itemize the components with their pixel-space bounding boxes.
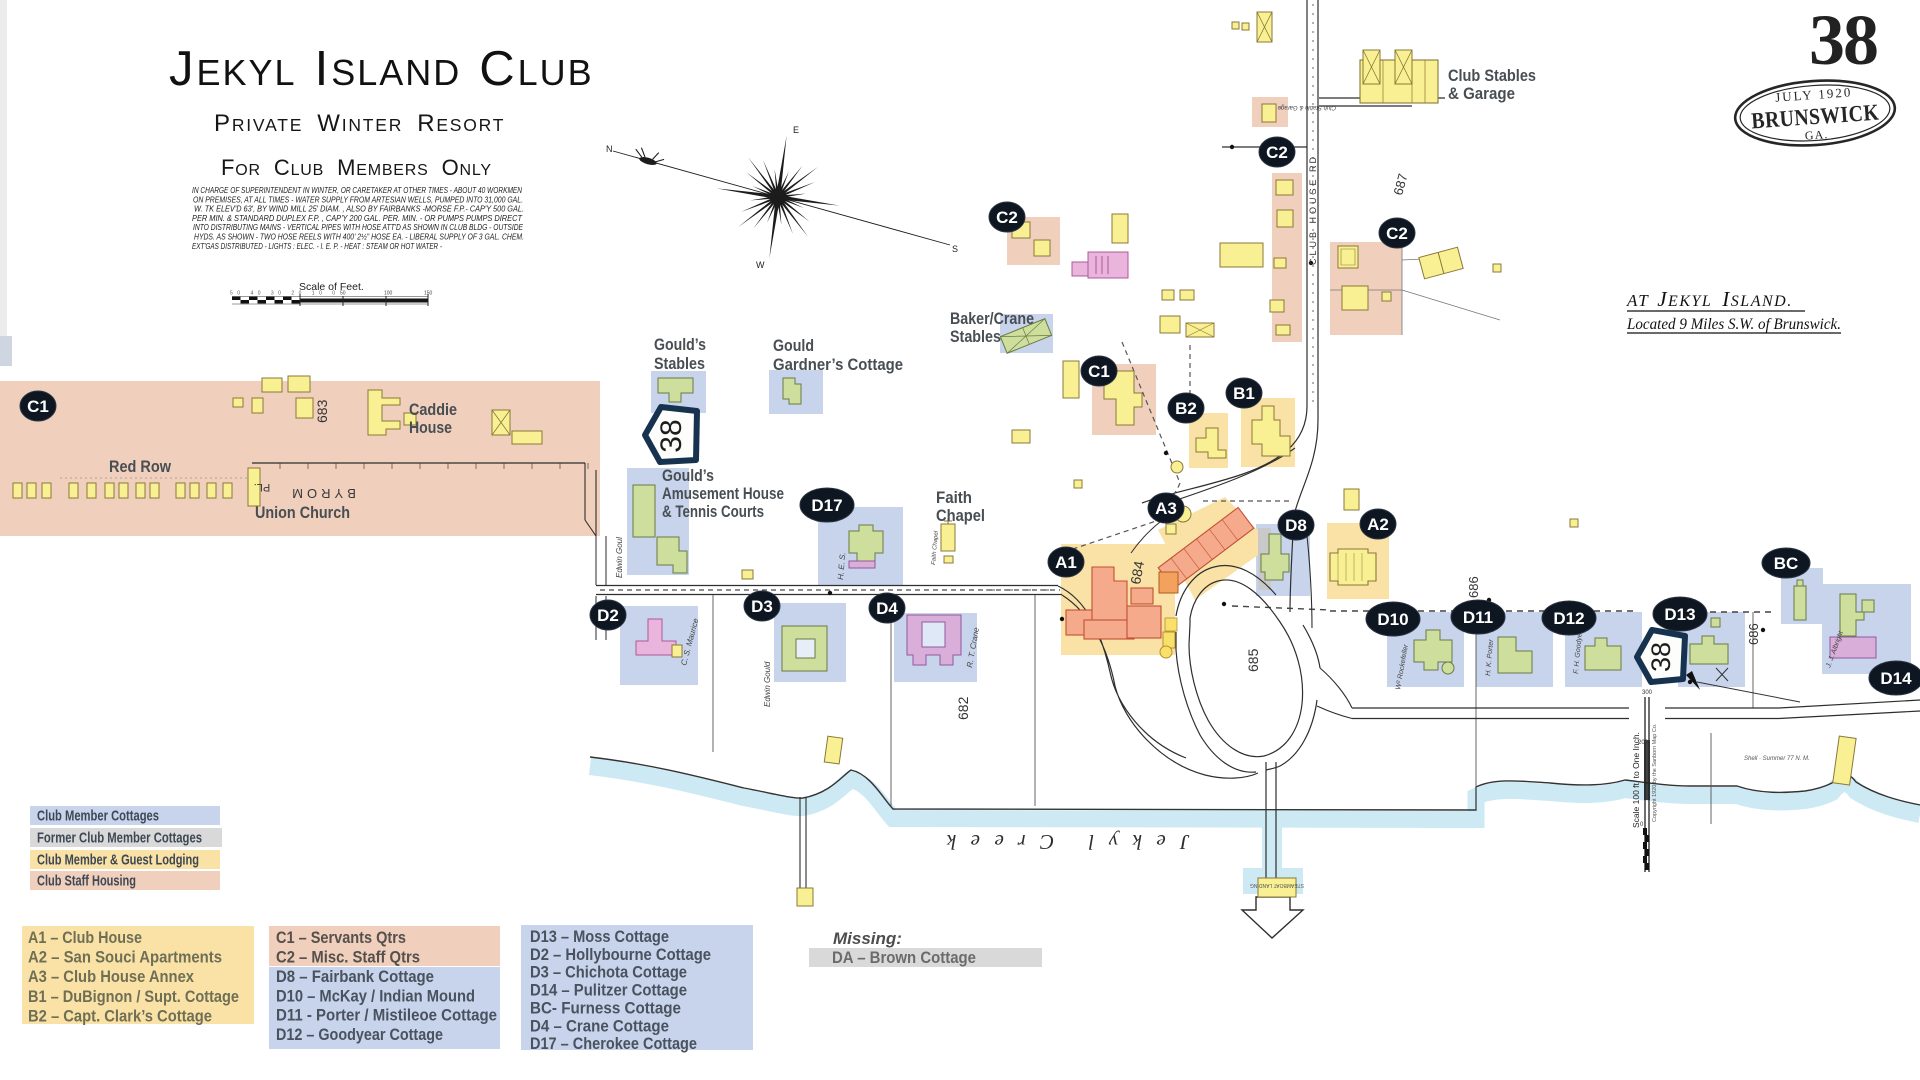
svg-text:BC- Furness Cottage: BC- Furness Cottage <box>530 998 681 1017</box>
svg-text:B1 – DuBignon / Supt. Cottage: B1 – DuBignon / Supt. Cottage <box>28 987 239 1006</box>
svg-text:Stables: Stables <box>950 327 1001 346</box>
svg-text:C1: C1 <box>1088 362 1110 381</box>
svg-text:D2: D2 <box>597 606 619 625</box>
svg-text:685: 685 <box>1245 648 1261 672</box>
svg-text:D3: D3 <box>751 597 773 616</box>
svg-text:D2 – Hollybourne Cottage: D2 – Hollybourne Cottage <box>530 945 711 964</box>
svg-text:Club Member & Guest Lodging: Club Member & Guest Lodging <box>37 852 199 869</box>
svg-text:N: N <box>606 144 613 154</box>
svg-text:Club Staff Housing: Club Staff Housing <box>37 873 136 890</box>
svg-text:D13 – Moss Cottage: D13 – Moss Cottage <box>530 927 669 946</box>
svg-text:50: 50 <box>340 291 346 297</box>
svg-text:Located 9 Miles S.W. of Brunsw: Located 9 Miles S.W. of Brunswick. <box>1626 316 1841 333</box>
svg-text:B1: B1 <box>1233 384 1255 403</box>
svg-text:Baker/Crane: Baker/Crane <box>950 309 1034 328</box>
svg-text:Gardner’s Cottage: Gardner’s Cottage <box>773 355 903 374</box>
svg-text:38: 38 <box>1646 642 1676 672</box>
svg-text:E: E <box>793 125 799 135</box>
svg-text:A1 – Club House: A1 – Club House <box>28 928 142 947</box>
svg-text:D10 – McKay / Indian Mound: D10 – McKay / Indian Mound <box>276 986 475 1005</box>
svg-text:D17: D17 <box>811 496 842 515</box>
svg-text:HYDS. AS SHOWN - TWO HOSE RE: HYDS. AS SHOWN - TWO HOSE REELS WITH 400… <box>194 233 524 242</box>
svg-text:House: House <box>409 418 452 437</box>
svg-text:Stables: Stables <box>654 354 705 373</box>
svg-text:INTO DISTRIBUTING MAINS - VER: INTO DISTRIBUTING MAINS - VERTICAL PIPES… <box>193 223 523 232</box>
svg-text:& Garage: & Garage <box>1448 84 1515 103</box>
svg-text:Caddie: Caddie <box>409 400 457 419</box>
svg-text:A3: A3 <box>1155 499 1177 518</box>
svg-text:Edwin Goul: Edwin Goul <box>615 537 624 578</box>
svg-text:C2: C2 <box>1386 224 1408 243</box>
svg-text:A2: A2 <box>1367 515 1389 534</box>
svg-text:STEAMBOAT LANDING: STEAMBOAT LANDING <box>1250 882 1304 888</box>
svg-text:RD: RD <box>1308 155 1318 172</box>
svg-text:D12: D12 <box>1553 609 1584 628</box>
svg-text:Chapel: Chapel <box>936 506 985 525</box>
svg-text:Club Stable & Garage: Club Stable & Garage <box>1277 104 1336 110</box>
svg-text:686: 686 <box>1466 576 1481 598</box>
svg-text:B2: B2 <box>1175 399 1197 418</box>
svg-text:Faith: Faith <box>936 488 972 507</box>
svg-text:B2 – Capt. Clark’s Cottage: B2 – Capt. Clark’s Cottage <box>28 1006 212 1025</box>
svg-text:DA – Brown Cottage: DA – Brown Cottage <box>832 948 976 967</box>
svg-text:IN CHARGE OF SUPERINTENDENT IN: IN CHARGE OF SUPERINTENDENT IN WINTER, O… <box>192 186 522 195</box>
svg-text:38: 38 <box>655 419 688 452</box>
svg-text:Edwin Gould: Edwin Gould <box>763 661 772 707</box>
svg-text:BC: BC <box>1774 554 1799 573</box>
svg-text:D13: D13 <box>1664 605 1695 624</box>
svg-text:D17 – Cherokee Cottage: D17 – Cherokee Cottage <box>530 1034 697 1053</box>
svg-text:D12 – Goodyear Cottage: D12 – Goodyear Cottage <box>276 1025 443 1044</box>
svg-text:C1 – Servants Qtrs: C1 – Servants Qtrs <box>276 928 406 947</box>
svg-text:300: 300 <box>1642 690 1653 696</box>
svg-text:BYROM: BYROM <box>288 486 356 501</box>
svg-text:W: W <box>756 260 765 270</box>
svg-text:Former Club Member Cottages: Former Club Member Cottages <box>37 830 202 847</box>
svg-text:C2: C2 <box>1266 143 1288 162</box>
svg-text:Copyright 1920 by the Sanborn: Copyright 1920 by the Sanborn Map Co. <box>1652 723 1658 822</box>
svg-text:PL.: PL. <box>254 481 271 493</box>
svg-text:Gould’s: Gould’s <box>654 335 706 354</box>
svg-text:Gould: Gould <box>773 336 814 355</box>
svg-text:A2 – San Souci Apartments: A2 – San Souci Apartments <box>28 948 222 967</box>
svg-text:Amusement House: Amusement House <box>662 484 784 503</box>
svg-text:Scale 100 ft. to One Inch.: Scale 100 ft. to One Inch. <box>1631 732 1641 828</box>
svg-text:D8: D8 <box>1285 516 1307 535</box>
svg-text:C2: C2 <box>996 208 1018 227</box>
svg-text:D4: D4 <box>876 599 898 618</box>
svg-text:C1: C1 <box>27 397 49 416</box>
svg-text:100: 100 <box>384 291 393 297</box>
svg-text:Club Member Cottages: Club Member Cottages <box>37 808 159 825</box>
svg-text:A3 – Club House Annex: A3 – Club House Annex <box>28 967 194 986</box>
svg-text:A1: A1 <box>1055 553 1077 572</box>
svg-text:C2 – Misc. Staff Qtrs: C2 – Misc. Staff Qtrs <box>276 948 420 967</box>
svg-text:Shell · Summer 77 N. M.: Shell · Summer 77 N. M. <box>1744 756 1810 762</box>
svg-text:Jekyl Creek: Jekyl Creek <box>932 830 1189 854</box>
svg-text:D3 – Chichota Cottage: D3 – Chichota Cottage <box>530 963 687 982</box>
svg-text:EXT'GAS DISTRIBUTED - LIGHTS: EXT'GAS DISTRIBUTED - LIGHTS : ELEC. - I… <box>192 242 442 251</box>
svg-text:50 40 30 20 10 0: 50 40 30 20 10 0 <box>230 291 340 297</box>
svg-text:686: 686 <box>1746 623 1761 645</box>
svg-text:683: 683 <box>314 399 330 423</box>
svg-text:Red Row: Red Row <box>109 457 172 476</box>
svg-text:38: 38 <box>1809 0 1877 80</box>
svg-text:682: 682 <box>955 696 971 720</box>
svg-text:Missing:: Missing: <box>833 929 902 948</box>
svg-text:PER MIN. & STANDARD DUPLEX: PER MIN. & STANDARD DUPLEX F.P. , CAP'Y … <box>192 214 523 223</box>
svg-text:ON PREMISES, AT ALL TIMES - WA: ON PREMISES, AT ALL TIMES - WATER SUPPLY… <box>193 195 523 204</box>
svg-text:W. TK ELEV'D 63', BY WIND MILL: W. TK ELEV'D 63', BY WIND MILL 25' DIAM.… <box>194 205 524 214</box>
svg-text:200: 200 <box>1638 740 1649 746</box>
svg-text:PRIVATEWINTERRESORT: PRIVATEWINTERRESORT <box>214 110 505 137</box>
svg-text:GA.: GA. <box>1804 127 1828 143</box>
svg-text:D10: D10 <box>1377 610 1408 629</box>
svg-text:& Tennis Courts: & Tennis Courts <box>662 502 764 521</box>
svg-text:D4 – Crane Cottage: D4 – Crane Cottage <box>530 1016 669 1035</box>
svg-text:S: S <box>952 244 958 254</box>
svg-text:Gould’s: Gould’s <box>662 466 714 485</box>
svg-text:D8 – Fairbank Cottage: D8 – Fairbank Cottage <box>276 967 434 986</box>
svg-text:CLUB HOUSE: CLUB HOUSE <box>1308 176 1318 265</box>
svg-text:150: 150 <box>424 291 433 297</box>
svg-text:D11: D11 <box>1463 608 1493 627</box>
svg-text:D14: D14 <box>1880 669 1912 688</box>
svg-text:Union Church: Union Church <box>255 503 350 522</box>
svg-text:Club Stables: Club Stables <box>1448 66 1536 85</box>
svg-text:D11 - Porter / Mistileoe Cotta: D11 - Porter / Mistileoe Cottage <box>276 1006 497 1025</box>
svg-text:D14 – Pulitzer Cottage: D14 – Pulitzer Cottage <box>530 981 687 1000</box>
